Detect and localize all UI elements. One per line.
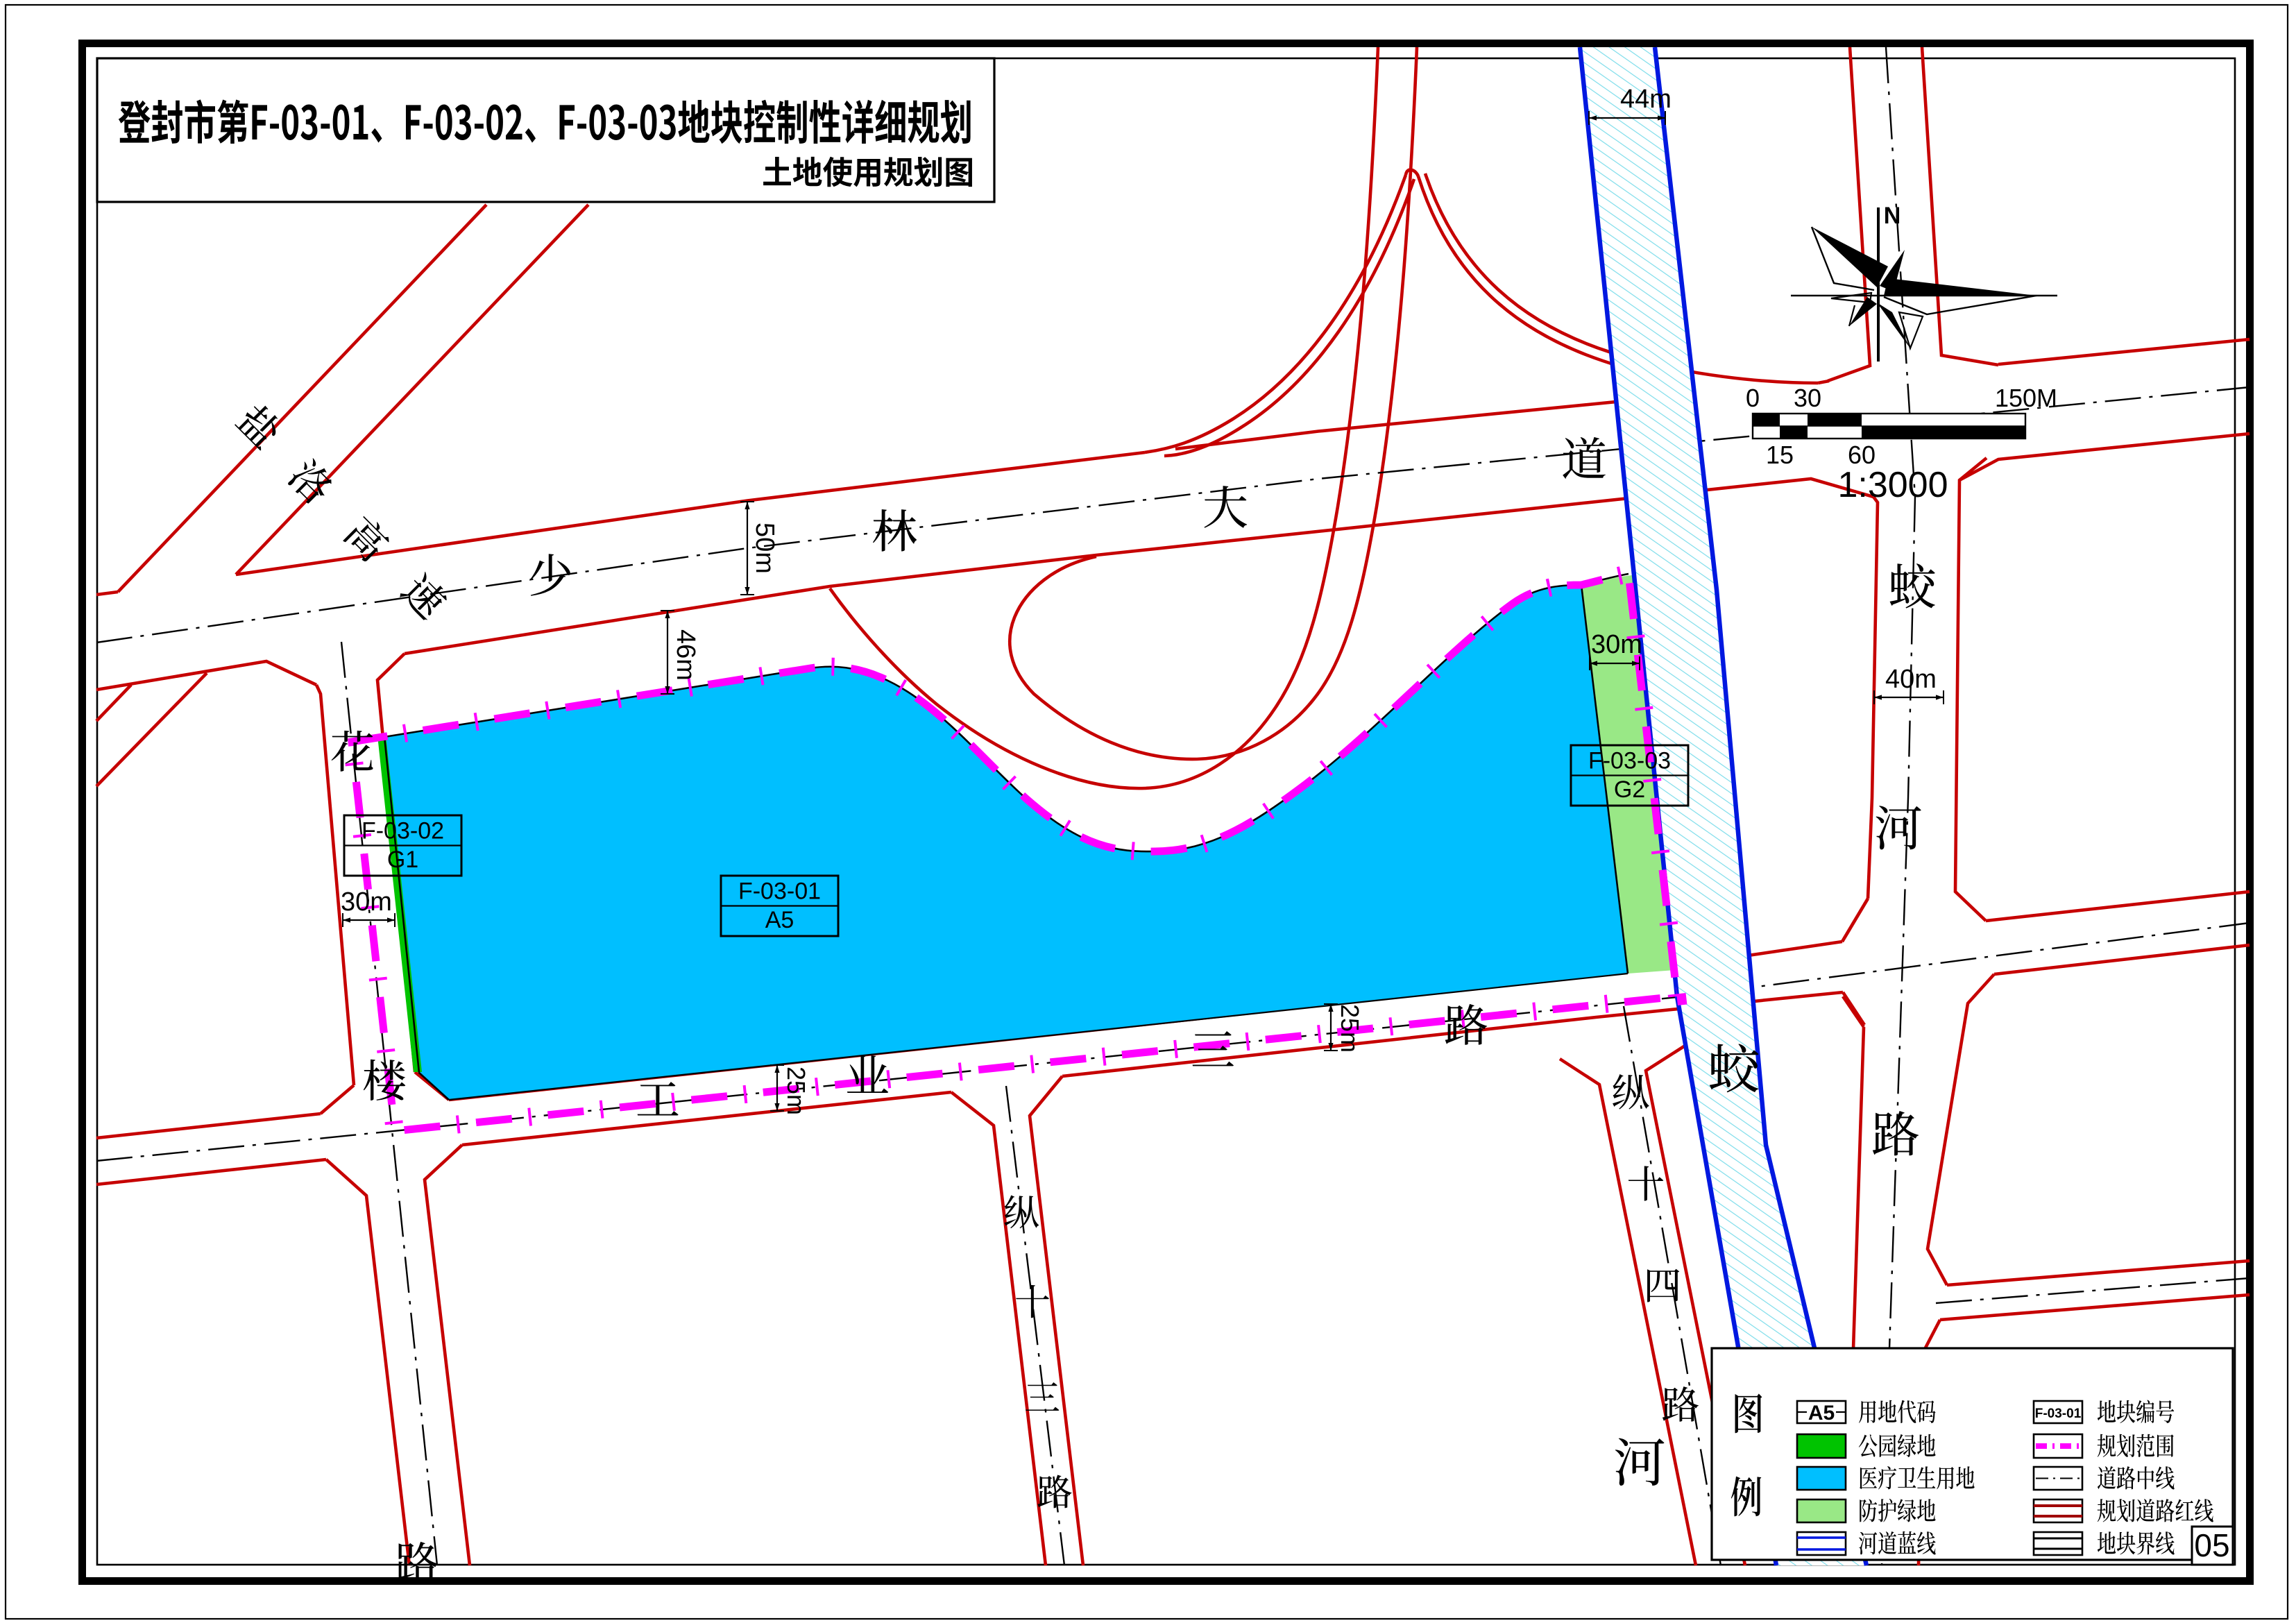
svg-text:30: 30 — [1794, 384, 1821, 412]
svg-text:50m: 50m — [750, 522, 779, 574]
svg-text:15: 15 — [1766, 441, 1794, 469]
svg-text:0: 0 — [1746, 384, 1760, 412]
svg-text:A5: A5 — [765, 907, 794, 933]
svg-text:F-03-01: F-03-01 — [2035, 1407, 2082, 1421]
svg-text:30m: 30m — [1591, 630, 1642, 659]
svg-text:N: N — [1884, 203, 1901, 229]
svg-text:1:3000: 1:3000 — [1837, 465, 1948, 505]
svg-text:25m: 25m — [1336, 1004, 1364, 1053]
svg-text:30m: 30m — [341, 887, 392, 917]
svg-text:25m: 25m — [782, 1067, 810, 1115]
svg-text:F-03-01: F-03-01 — [738, 878, 821, 905]
svg-text:F-03-03: F-03-03 — [1588, 748, 1671, 774]
svg-text:F-03-02: F-03-02 — [362, 818, 444, 844]
svg-text:46m: 46m — [671, 629, 700, 681]
svg-text:A5: A5 — [1808, 1402, 1835, 1425]
svg-text:150M: 150M — [1995, 384, 2057, 412]
svg-text:40m: 40m — [1885, 665, 1937, 694]
svg-text:G1: G1 — [387, 847, 418, 873]
svg-text:G2: G2 — [1614, 776, 1645, 803]
svg-text:05: 05 — [2194, 1527, 2229, 1563]
svg-text:44m: 44m — [1620, 85, 1672, 114]
